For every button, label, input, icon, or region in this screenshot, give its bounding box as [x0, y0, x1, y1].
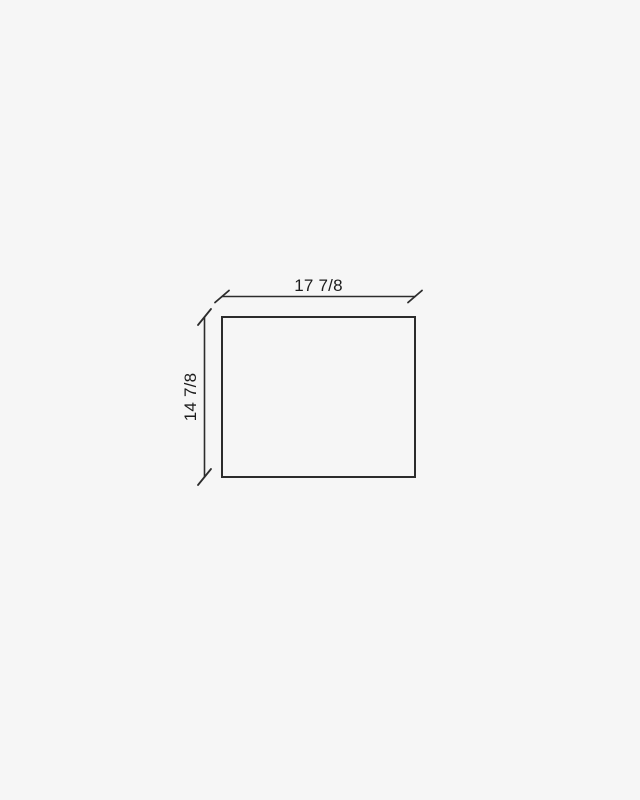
diagram-svg: 17 7/8 14 7/8	[0, 0, 640, 800]
height-dimension-label: 14 7/8	[181, 373, 200, 421]
page-background	[0, 0, 640, 800]
dimension-diagram: 17 7/8 14 7/8	[0, 0, 640, 800]
width-dimension-label: 17 7/8	[294, 276, 342, 295]
